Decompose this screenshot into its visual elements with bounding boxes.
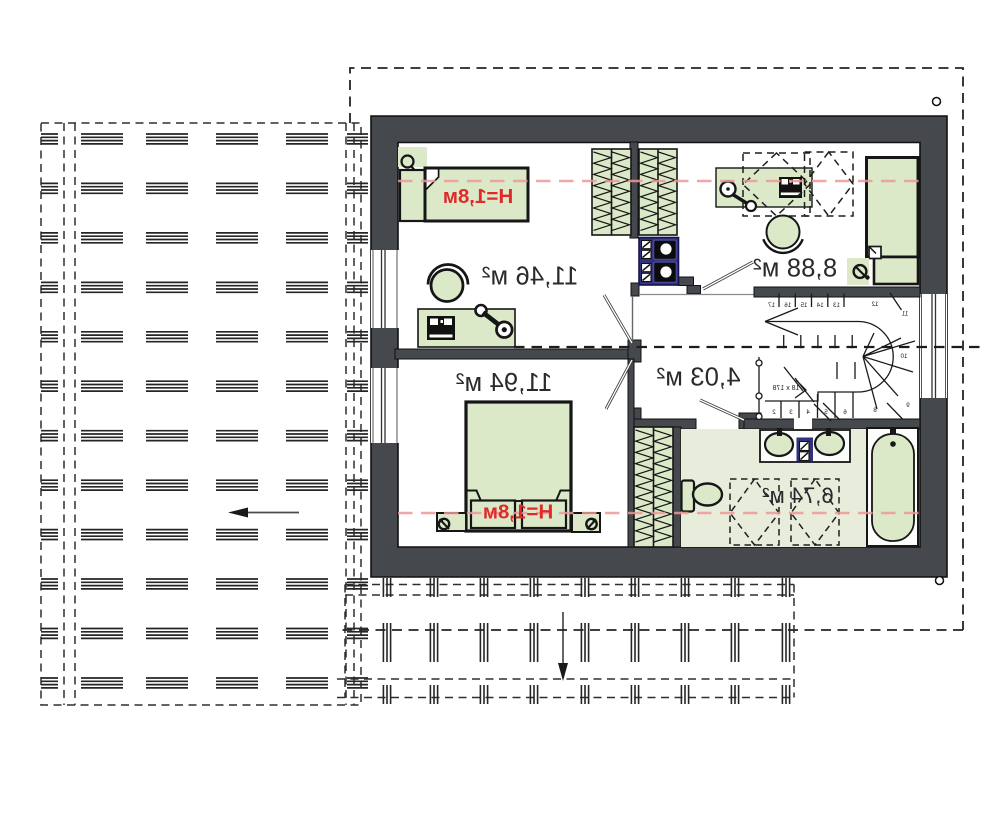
svg-text:12: 12 [871,301,878,308]
svg-text:6: 6 [843,409,847,416]
svg-text:H=1,8м: H=1,8м [483,501,553,524]
svg-text:8: 8 [873,407,877,414]
svg-text:4,03 м²: 4,03 м² [656,363,740,391]
svg-text:11,94 м²: 11,94 м² [456,369,553,397]
svg-text:9: 9 [906,402,910,409]
svg-text:8,88 м²: 8,88 м² [753,255,837,283]
svg-text:16: 16 [784,302,791,309]
svg-text:2: 2 [772,409,776,416]
svg-text:10: 10 [900,353,907,360]
svg-text:13: 13 [833,302,840,309]
svg-text:6,74 м²: 6,74 м² [762,483,833,508]
svg-text:5: 5 [824,409,828,416]
svg-text:3: 3 [789,409,793,416]
svg-text:11: 11 [901,311,908,318]
svg-text:18 x 178: 18 x 178 [772,385,799,392]
svg-text:15: 15 [800,302,807,309]
svg-text:17: 17 [768,302,775,309]
svg-text:4: 4 [806,409,810,416]
svg-text:14: 14 [816,302,823,309]
svg-text:11,46 м²: 11,46 м² [482,263,579,291]
svg-text:H=1,8м: H=1,8м [443,185,513,208]
